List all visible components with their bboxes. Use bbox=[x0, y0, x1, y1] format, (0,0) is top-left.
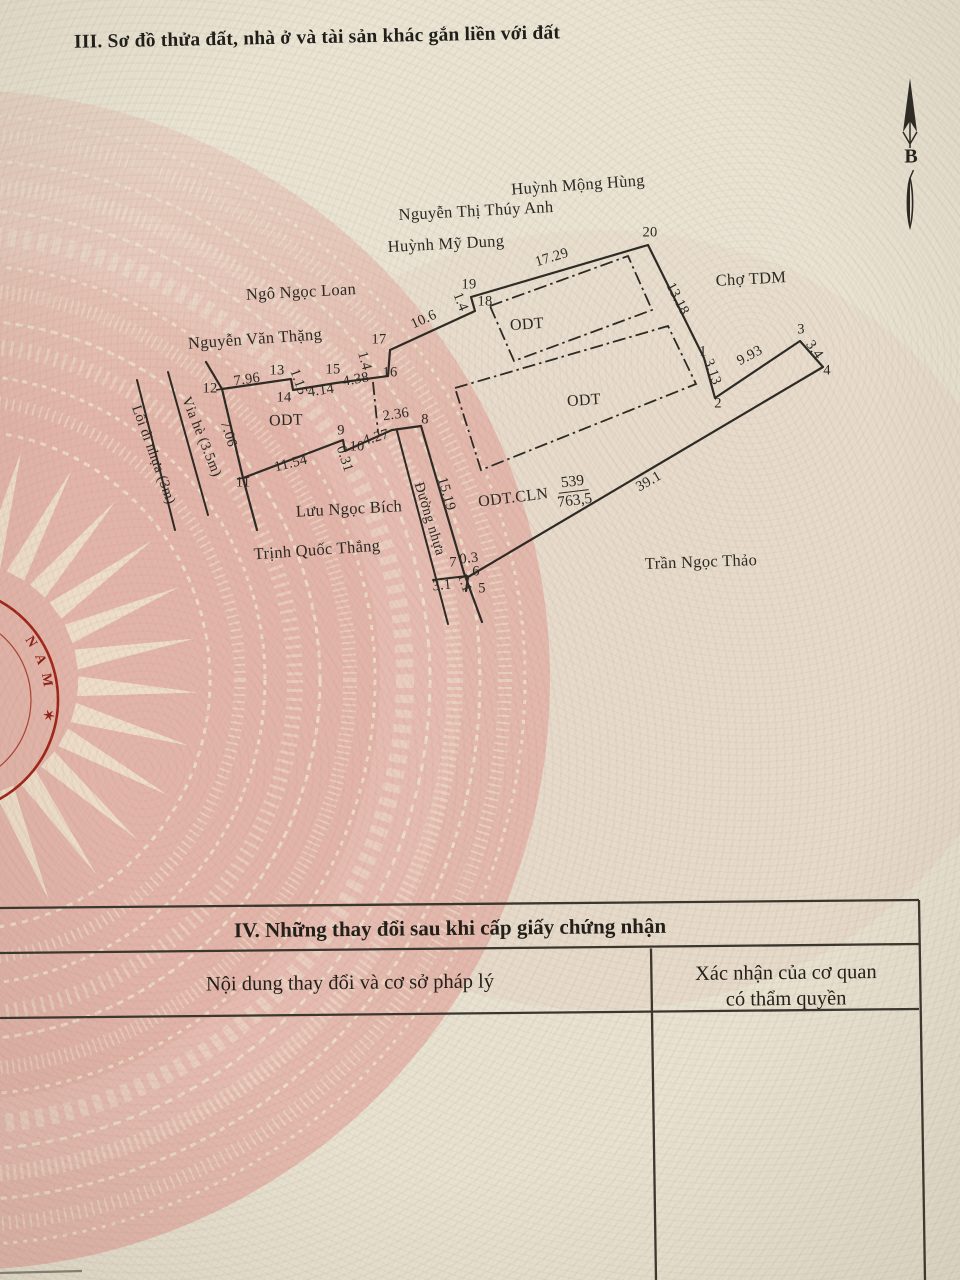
road-label: Vỉa hè (3.5m) bbox=[177, 394, 225, 479]
vertex-number: 14 bbox=[276, 390, 291, 407]
measurement-label: 2.36 bbox=[382, 405, 411, 426]
table-borders bbox=[0, 900, 925, 1280]
diagram-linework bbox=[0, 0, 960, 1280]
measurement-label: 17.29 bbox=[533, 245, 571, 271]
neighbor-name: Chợ TDM bbox=[715, 267, 787, 291]
neighbor-name: Huỳnh Mỹ Dung bbox=[387, 231, 505, 257]
building-outlines bbox=[373, 256, 696, 470]
measurement-label: 3.4 bbox=[802, 337, 827, 362]
measurement-label: 1.4 bbox=[353, 350, 374, 373]
measurement-label: 3.1 bbox=[432, 577, 453, 596]
measurement-label: 10.6 bbox=[408, 307, 439, 333]
measurement-label: 4.38 bbox=[341, 369, 370, 390]
vertex-number: 2 bbox=[714, 396, 722, 413]
zone-label: ODT bbox=[510, 315, 545, 335]
certificate-page: NAM ✶ bbox=[0, 0, 960, 1280]
vertex-number: 15 bbox=[325, 362, 340, 379]
measurement-label: 0.3 bbox=[459, 550, 480, 569]
parcel-boundary bbox=[206, 245, 823, 622]
vertex-number: 13 bbox=[269, 363, 284, 380]
vertex-number: 11 bbox=[236, 475, 251, 492]
measurement-label: 4.27 bbox=[361, 426, 391, 450]
diagram-labels: Huỳnh Mộng HùngNguyễn Thị Thúy AnhHuỳnh … bbox=[0, 0, 960, 1280]
zone-code-odt-cln: ODT.CLN bbox=[477, 485, 549, 511]
vertex-number: 9 bbox=[337, 423, 345, 440]
vertex-number: 17 bbox=[371, 332, 386, 349]
neighbor-name: Lưu Ngọc Bích bbox=[295, 496, 402, 522]
measurement-label: 39.1 bbox=[633, 468, 665, 496]
neighbor-name: Ngô Ngọc Loan bbox=[245, 279, 356, 305]
vertex-number: 8 bbox=[421, 412, 429, 429]
red-seal-arc bbox=[0, 587, 58, 813]
measurement-label: 7.96 bbox=[233, 370, 262, 391]
section4-title: IV. Những thay đổi sau khi cấp giấy chứn… bbox=[60, 912, 840, 945]
vertex-number: 18 bbox=[477, 294, 492, 311]
neighbor-name: Trần Ngọc Thảo bbox=[644, 550, 757, 574]
vertex-number: 5 bbox=[478, 581, 486, 598]
street-lines bbox=[137, 372, 467, 624]
north-label: B bbox=[904, 146, 917, 169]
guilloche-pattern bbox=[0, 0, 960, 1280]
measurement-label: 11.54 bbox=[273, 452, 310, 477]
measurement-label: 0.31 bbox=[332, 444, 356, 475]
zone-label: ODT bbox=[567, 391, 602, 411]
survey-ticks bbox=[216, 388, 249, 479]
vertex-number: 16 bbox=[382, 365, 397, 382]
table-col2-header: Xác nhận của cơ quan có thẩm quyền bbox=[660, 959, 913, 1014]
neighbor-name: Nguyễn Văn Thặng bbox=[187, 324, 322, 353]
measurement-label: 9.93 bbox=[734, 342, 765, 369]
measurement-label: 4.14 bbox=[307, 381, 336, 402]
neighbor-name: Trịnh Quốc Thắng bbox=[253, 536, 381, 565]
vertex-number: 19 bbox=[461, 277, 476, 294]
measurement-label: 13.18 bbox=[662, 280, 693, 318]
vertex-number: 6 bbox=[472, 564, 480, 581]
vertex-number: 12 bbox=[202, 381, 217, 398]
land-use-area-note: ODT.CLN 539 763,5 bbox=[476, 471, 594, 521]
emblem-watermark: NAM ✶ bbox=[0, 0, 960, 1280]
neighbor-name: Huỳnh Mộng Hùng bbox=[511, 170, 646, 199]
neighbor-name: Nguyễn Thị Thúy Anh bbox=[398, 197, 554, 225]
area-fraction: 539 763,5 bbox=[553, 471, 594, 512]
table-col1-header: Nội dung thay đổi và cơ sở pháp lý bbox=[60, 969, 640, 998]
measurement-label: 3.13 bbox=[699, 357, 724, 388]
measurement-label: 15.19 bbox=[433, 475, 459, 512]
vertex-number: 20 bbox=[642, 225, 657, 242]
road-label: Đường nhựa bbox=[410, 480, 448, 558]
seal-text: NAM ✶ bbox=[22, 634, 57, 731]
vertex-number: 4 bbox=[823, 363, 831, 380]
measurement-label: 1.1 bbox=[453, 571, 475, 594]
photo-vignette bbox=[0, 0, 960, 1280]
vertex-number: 7 bbox=[449, 555, 457, 572]
zone-label: ODT bbox=[269, 411, 303, 430]
vertex-number: 1 bbox=[699, 344, 707, 361]
measurement-label: 7.06 bbox=[216, 419, 240, 449]
road-label: Lối đi nhựa (3m) bbox=[127, 403, 179, 507]
measurement-label: 1.15 bbox=[285, 367, 310, 398]
measurement-label: 1.4 bbox=[449, 290, 472, 314]
vertex-number: 10 bbox=[349, 439, 364, 456]
section3-title: III. Sơ đồ thửa đất, nhà ở và tài sản kh… bbox=[74, 20, 674, 54]
vertex-number: 3 bbox=[797, 322, 805, 339]
drum-emblem bbox=[0, 90, 550, 1270]
